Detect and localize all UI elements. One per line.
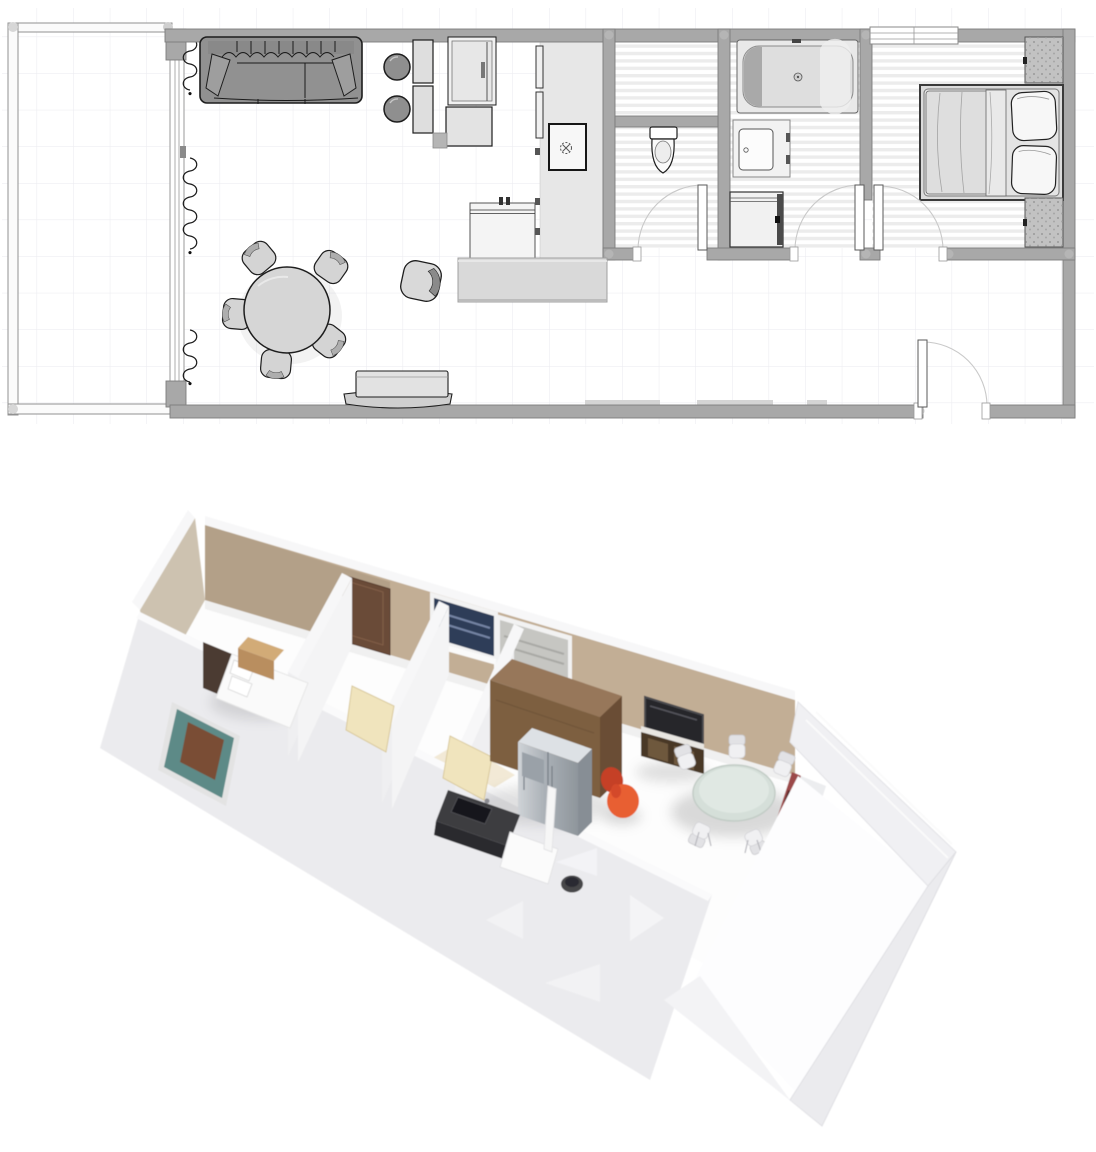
wall-bedroom-bottom[interactable]: [943, 248, 1075, 260]
cabinet-tab: [433, 133, 447, 148]
wall-kitchen-wc[interactable]: [603, 29, 615, 260]
glass-wall[interactable]: [170, 31, 184, 405]
wall-bath-bottom[interactable]: [707, 248, 793, 260]
kitchen-island[interactable]: [458, 258, 607, 302]
bar-stool-1[interactable]: [384, 54, 410, 80]
wall-cabinet-1[interactable]: [413, 40, 433, 83]
washbasin[interactable]: [733, 120, 790, 177]
pillow: [1011, 145, 1057, 195]
glass-door-handle: [180, 146, 186, 158]
tv-bench[interactable]: [344, 371, 452, 408]
sofa[interactable]: [200, 37, 362, 104]
scene-svg: [0, 0, 1096, 1152]
balcony-wall-left[interactable]: [8, 23, 18, 415]
balcony-wall-bottom[interactable]: [8, 404, 170, 414]
glass-wall-pillar-bottom: [166, 381, 186, 407]
wall-bath-bedroom[interactable]: [860, 29, 872, 200]
wall-joint-dot: [8, 404, 18, 414]
wall-bottom[interactable]: [170, 405, 923, 418]
kitchen-sink-cabinet[interactable]: [470, 197, 535, 258]
wardrobe-top[interactable]: [1023, 37, 1063, 83]
cooktop-oven[interactable]: [549, 124, 586, 170]
wall-right[interactable]: [1063, 29, 1075, 418]
floor-plan-view: [2, 8, 1094, 424]
wall-wc-divider[interactable]: [615, 116, 718, 127]
wall-wc-bath[interactable]: [718, 29, 730, 260]
bedroom-window[interactable]: [870, 27, 958, 44]
dining-table[interactable]: [244, 267, 330, 353]
base-cabinet[interactable]: [446, 107, 492, 146]
wall-bottom-right[interactable]: [984, 405, 1075, 418]
wardrobe-bottom[interactable]: [1023, 198, 1063, 247]
render-3d-view[interactable]: [100, 510, 956, 1126]
wc-upper-floor: [615, 42, 718, 116]
fridge[interactable]: [448, 37, 496, 105]
bathtub[interactable]: [737, 39, 858, 114]
washing-machine[interactable]: [730, 192, 783, 247]
wall-cabinet-2[interactable]: [413, 86, 433, 133]
wall-joint-dot: [8, 22, 18, 32]
pillow: [1011, 91, 1057, 141]
double-bed[interactable]: [920, 85, 1063, 200]
trash-bin: [561, 876, 583, 893]
bar-stool-2[interactable]: [384, 96, 410, 122]
floorplanner-canvas: [0, 0, 1096, 1152]
tub-faucet: [792, 39, 801, 43]
duvet-fold: [986, 90, 1006, 196]
balcony-wall-top[interactable]: [8, 23, 172, 32]
